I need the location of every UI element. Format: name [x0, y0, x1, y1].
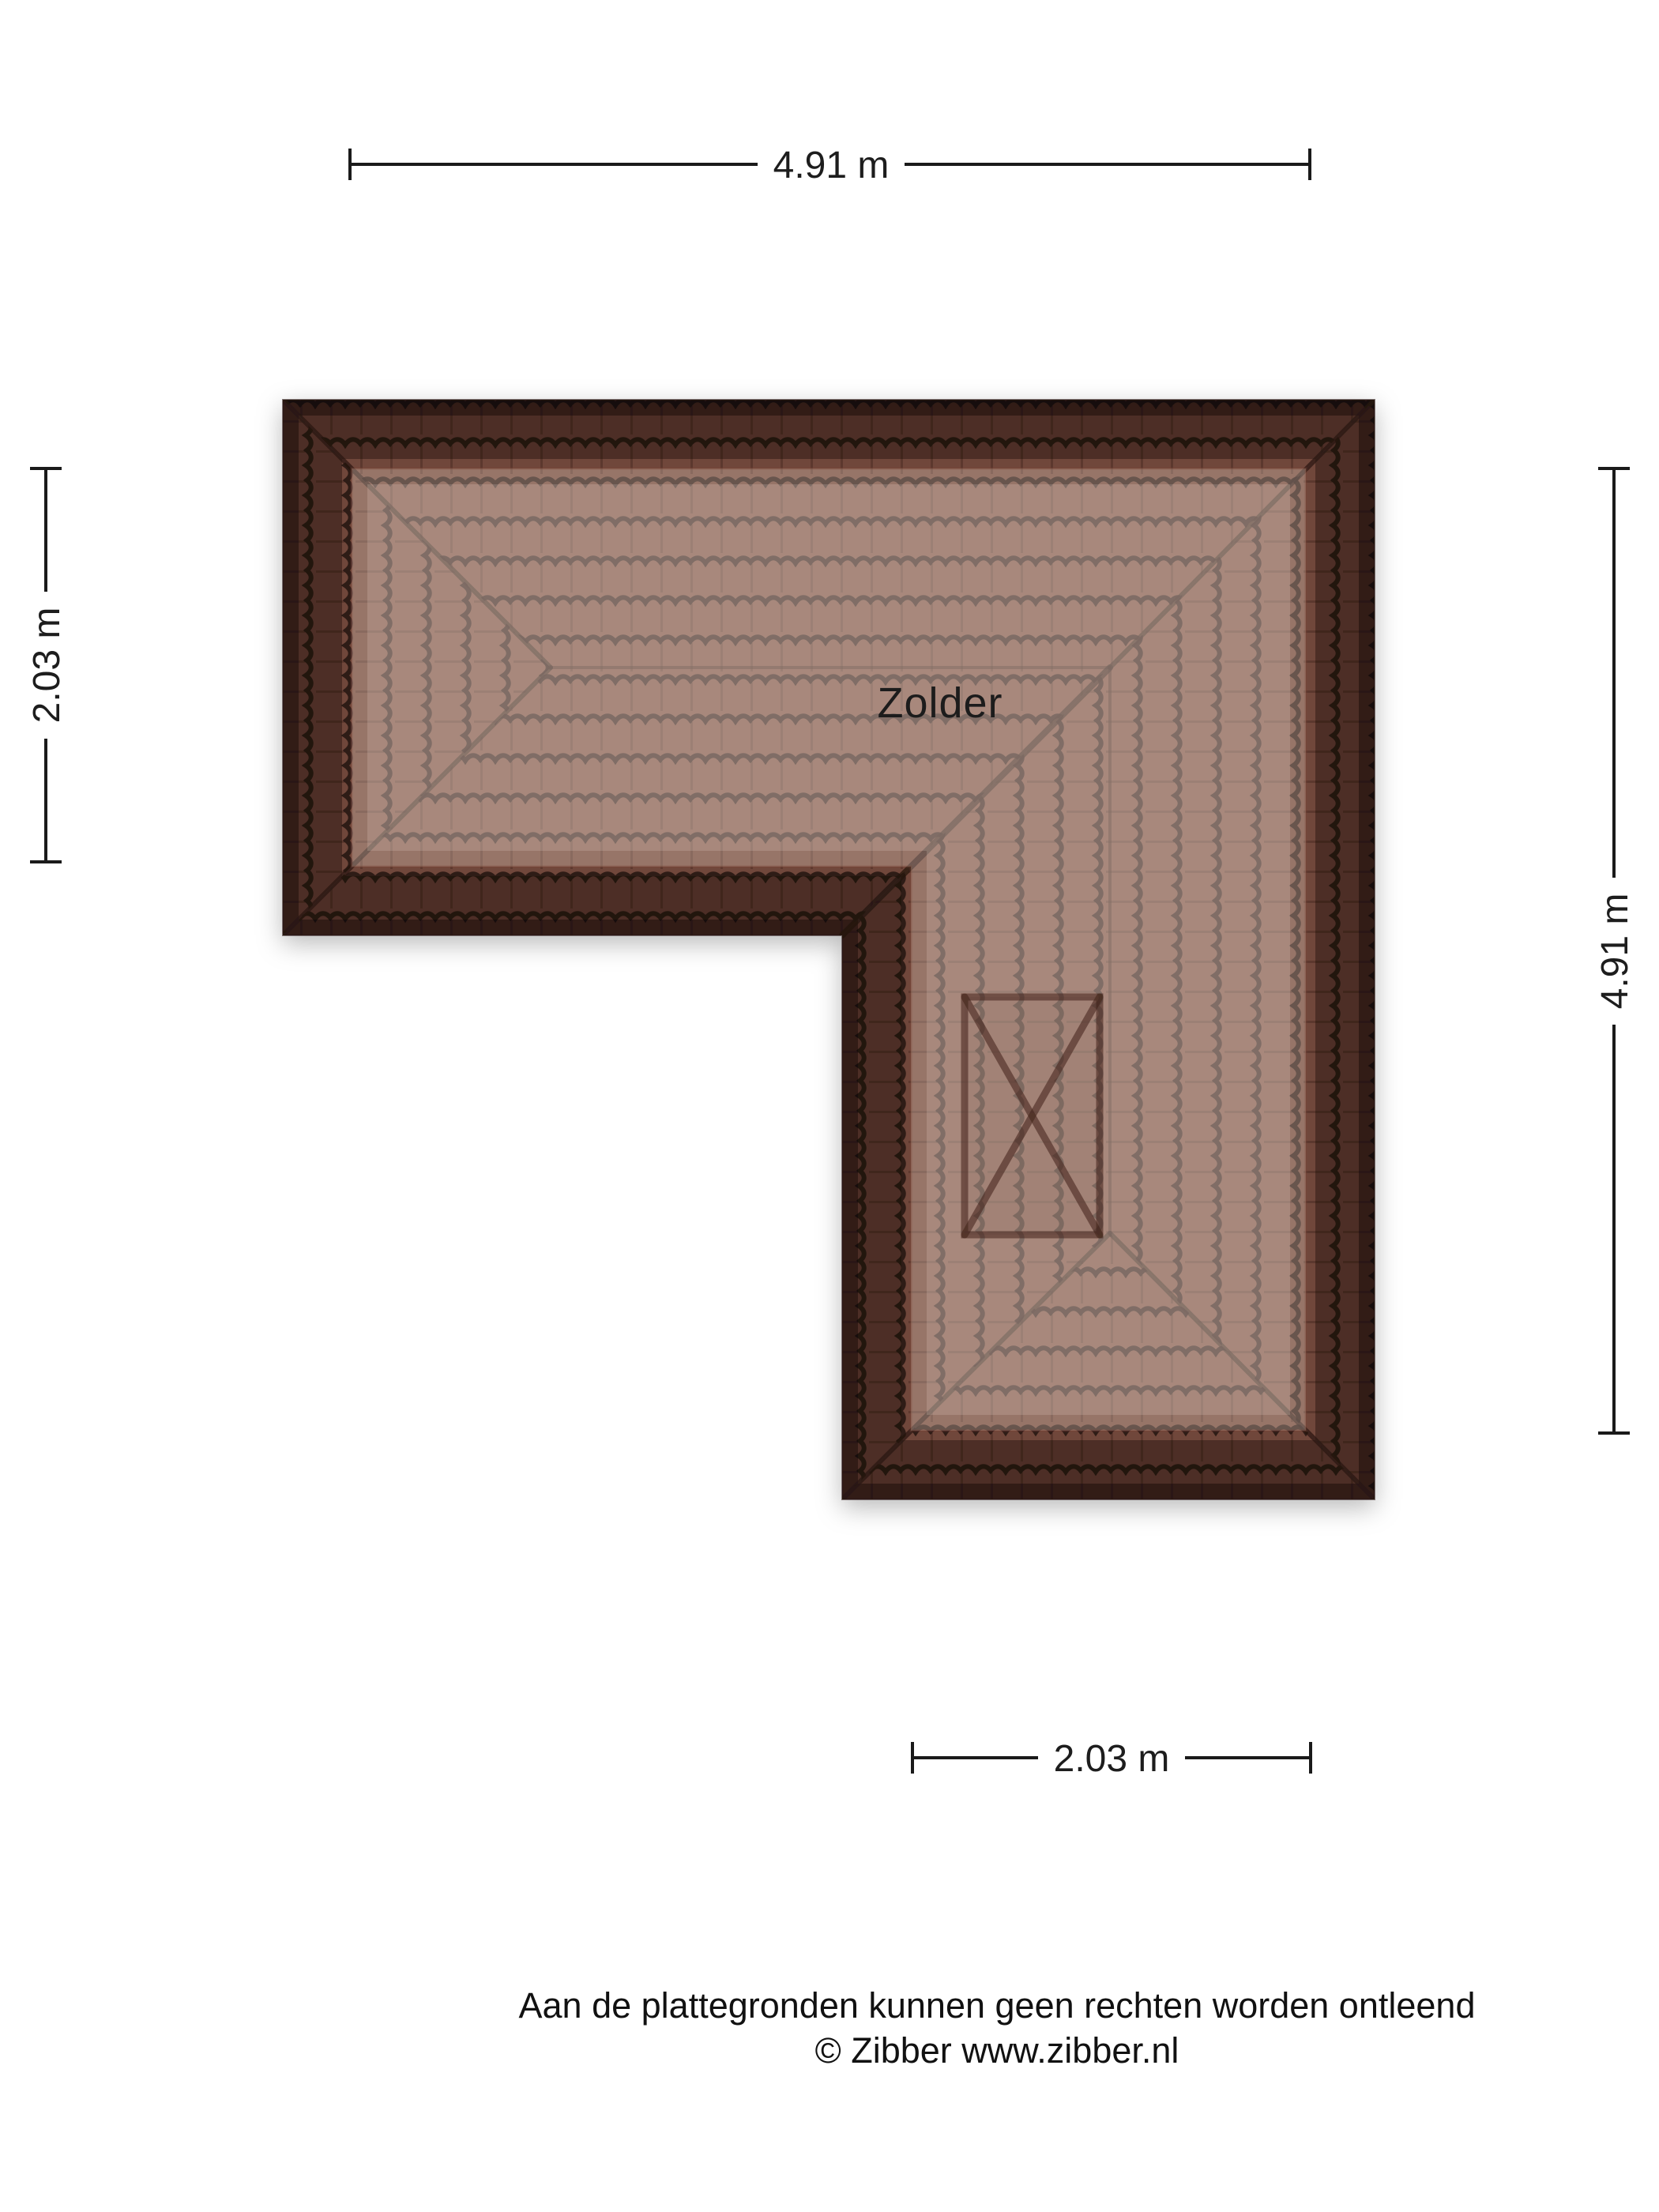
dimension-right: 4.91 m — [1594, 468, 1636, 1433]
floorplan-canvas: Zolder 4.91 m 2.03 m 4.91 m — [0, 0, 1659, 2212]
skylight-window — [965, 997, 1100, 1235]
footer-copyright: © Zibber www.zibber.nl — [815, 2030, 1179, 2071]
dimension-left: 2.03 m — [26, 468, 68, 862]
floorplan-page: Zolder 4.91 m 2.03 m 4.91 m — [0, 0, 1659, 2212]
roof-plan: Zolder — [283, 400, 1375, 1499]
dimension-lines: 4.91 m 2.03 m 4.91 m 2.03 m — [26, 145, 1636, 1780]
attic-area-overlay-inner — [367, 484, 1290, 1415]
room-label: Zolder — [877, 679, 1003, 727]
footer: Aan de plattegronden kunnen geen rechten… — [519, 1985, 1476, 2071]
dimension-left-label: 2.03 m — [26, 608, 68, 724]
dimension-bottom: 2.03 m — [912, 1738, 1311, 1780]
dimension-top-label: 4.91 m — [773, 145, 890, 186]
footer-disclaimer: Aan de plattegronden kunnen geen rechten… — [519, 1985, 1476, 2026]
dimension-right-label: 4.91 m — [1594, 893, 1636, 1010]
dimension-bottom-label: 2.03 m — [1054, 1738, 1170, 1780]
dimension-top: 4.91 m — [350, 145, 1310, 186]
